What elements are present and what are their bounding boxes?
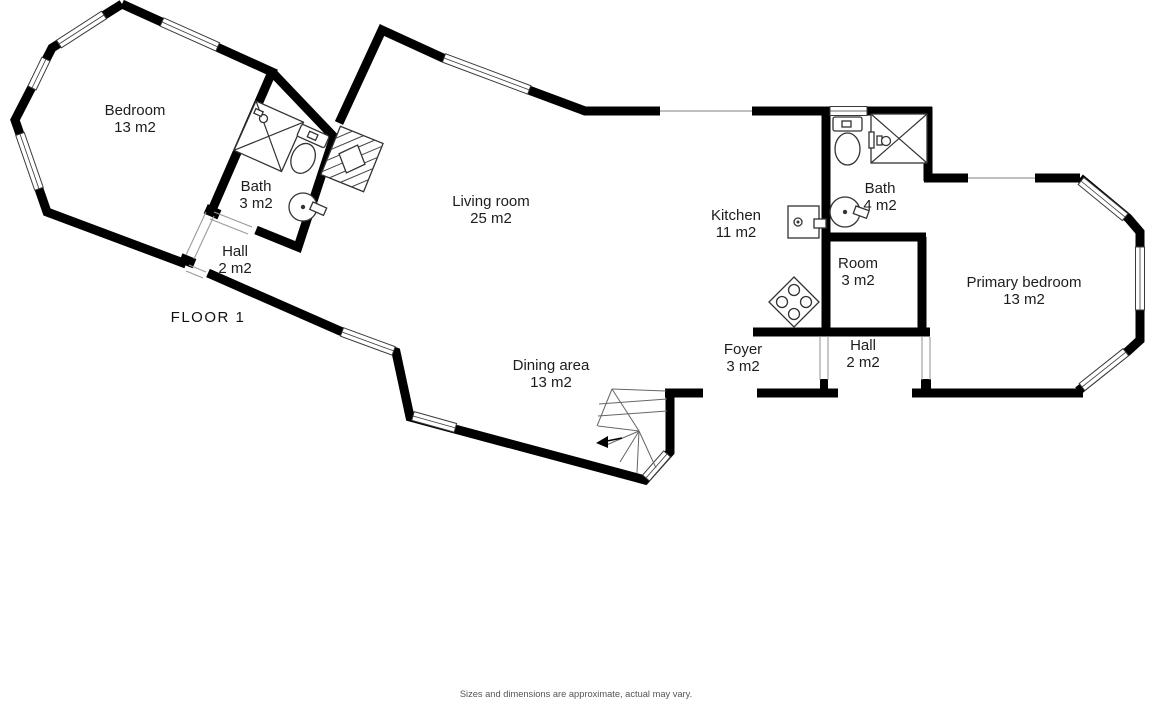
room-label-foyer: Foyer [724,341,762,358]
room-area-bedroom: 13 m2 [114,119,156,136]
window [968,173,1035,183]
room-area-hall-right: 2 m2 [846,354,879,371]
window [660,106,752,116]
walls [15,4,1140,480]
floor-label: FLOOR 1 [171,309,246,326]
room-label-bath-left: Bath [241,178,272,195]
window [412,412,457,433]
room-label-kitchen: Kitchen [711,207,761,224]
room-label-primary-bedroom: Primary bedroom [966,274,1081,291]
room-area-foyer: 3 m2 [726,358,759,375]
stove-icon [769,277,819,327]
room-area-hall-left: 2 m2 [218,260,251,277]
floor-plan-canvas: Bedroom 13 m2 Bath 3 m2 Hall 2 m2 Living… [0,0,1152,711]
room-label-room: Room [838,255,878,272]
window [1079,349,1128,391]
kitchen-unit-icon [788,206,826,238]
room-label-hall-right: Hall [850,337,876,354]
room-label-living-room: Living room [452,193,530,210]
window [160,18,219,51]
room-area-bath-left: 3 m2 [239,195,272,212]
room-label-bedroom: Bedroom [105,102,166,119]
window [1078,178,1128,221]
floor-plan-page: Bedroom 13 m2 Bath 3 m2 Hall 2 m2 Living… [0,0,1152,711]
room-area-bath-right: 4 m2 [863,197,896,214]
window [340,328,395,355]
window [643,451,671,481]
room-label-bath-right: Bath [865,180,896,197]
shower-icon [869,114,927,163]
sink-icon [289,193,327,221]
room-label-hall-left: Hall [222,243,248,260]
window [16,133,43,191]
disclaimer-text: Sizes and dimensions are approximate, ac… [460,689,692,699]
window [1136,247,1145,310]
window [442,54,530,94]
room-area-living-room: 25 m2 [470,210,512,227]
windows [16,11,1145,481]
room-area-dining-area: 13 m2 [530,374,572,391]
room-label-dining-area: Dining area [513,357,590,374]
window [28,57,50,90]
window [830,107,867,116]
toilet-icon [833,117,862,165]
room-area-kitchen: 11 m2 [716,224,757,241]
kitchen-fixtures [769,206,826,327]
window [57,11,107,48]
room-area-room: 3 m2 [841,272,874,289]
room-area-primary-bedroom: 13 m2 [1003,291,1045,308]
